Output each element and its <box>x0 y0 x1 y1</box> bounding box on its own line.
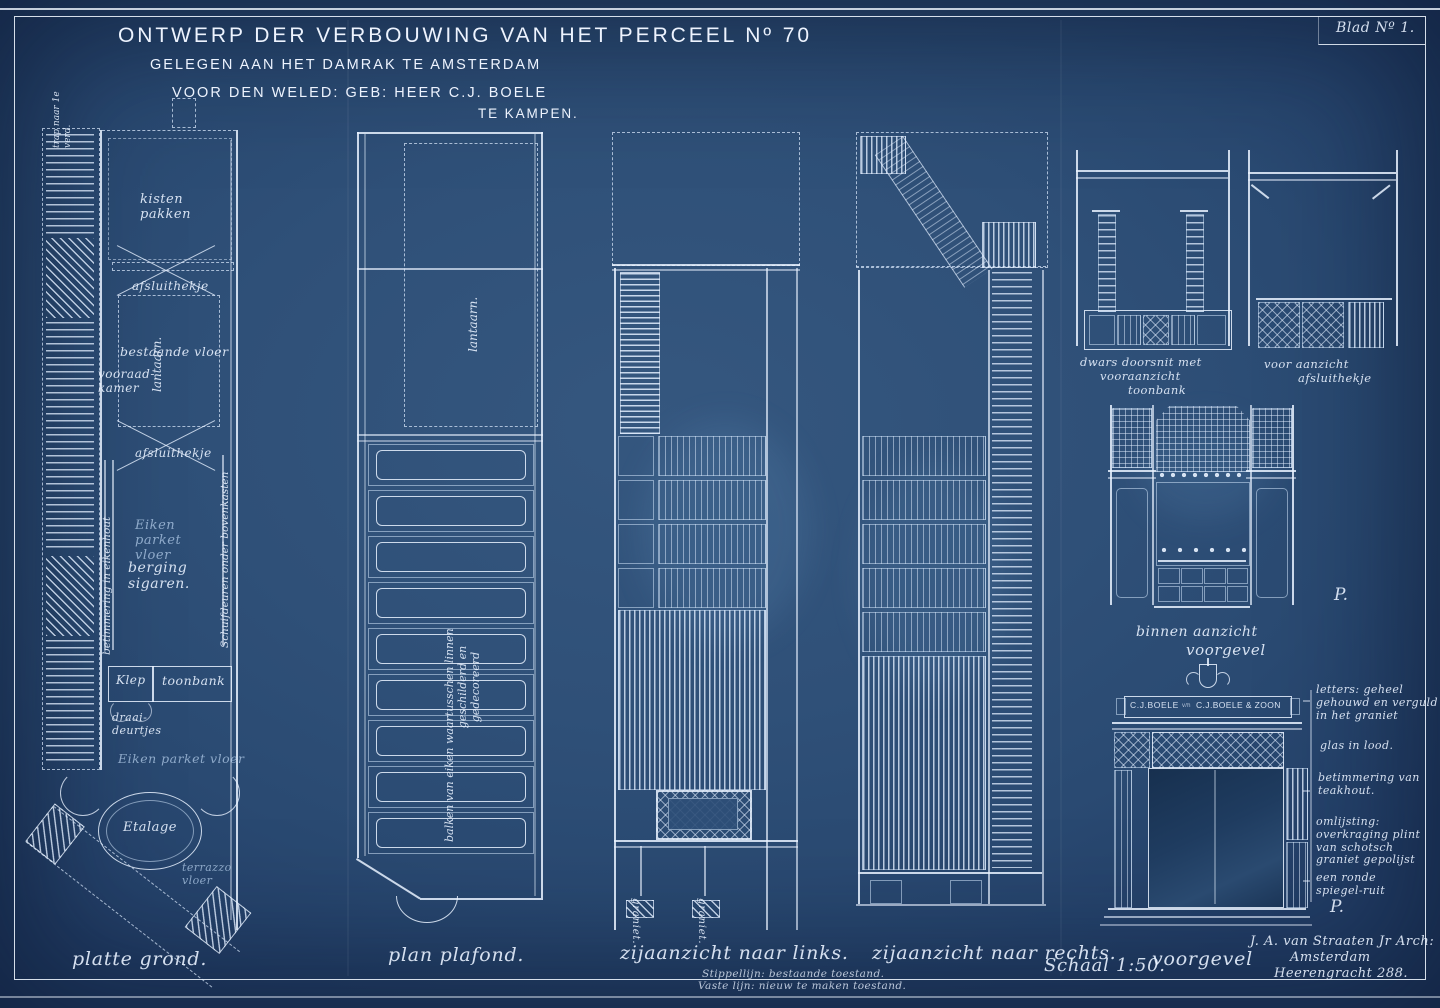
plan-top-edge <box>102 130 236 131</box>
shelf-row <box>862 524 986 564</box>
voorgevel-note-omlijsting: omlijsting: overkraging plint van schots… <box>1316 816 1438 867</box>
voorgevel-note-betimmering: betimmering van teakhout. <box>1318 772 1428 798</box>
crest-shield <box>1199 664 1217 688</box>
ba-base-panel <box>1204 586 1226 602</box>
rechts-stair-landing <box>982 222 1036 268</box>
ba-pilaster-l-in <box>1152 405 1154 605</box>
notes-leader-line <box>1310 690 1312 902</box>
blueprint-sheet: Blad Nº 1. ONTWERP DER VERBOUWING VAN HE… <box>0 0 1440 1008</box>
plan-wall-left <box>100 130 102 770</box>
links-existing-outline <box>612 132 800 266</box>
doorway-center-stile <box>1214 770 1216 904</box>
shelf-row <box>862 480 986 520</box>
label-afsluithekje-2: afsluithekje <box>135 447 212 461</box>
label-hekje-2: afsluithekje <box>1298 372 1371 385</box>
notes-tick-1 <box>1303 700 1310 702</box>
crest-scroll-left <box>1186 672 1201 687</box>
label-draaideurtjes: draai- deurtjes <box>112 712 172 738</box>
ba-glass-right <box>1252 408 1292 468</box>
sign-text-mid: v/h <box>1182 703 1191 710</box>
links-leader-2 <box>704 846 706 896</box>
links-edge-mid <box>766 268 768 930</box>
label-afsluithekje-1: afsluithekje <box>132 280 209 294</box>
beam-line-b <box>357 440 543 442</box>
ba-base-panel <box>1158 586 1180 602</box>
stair-flight-3 <box>46 640 94 765</box>
signature-line1: J. A. van Straaten Jr Arch: <box>1250 934 1434 949</box>
links-slat-block <box>618 610 766 790</box>
notes-tick-2 <box>1303 790 1310 792</box>
toonbank-panel-hatch-l <box>1117 315 1141 345</box>
legend-stippellijn: Stippellijn: bestaande toestand. <box>702 968 884 980</box>
plinth-step-c <box>1100 924 1312 926</box>
title-line1: ONTWERP DER VERBOUWING VAN HET PERCEEL N… <box>118 24 812 48</box>
transom-stained-glass <box>1152 732 1284 768</box>
ceiling-panel-inner <box>376 450 526 480</box>
rechts-base-b <box>856 904 1046 906</box>
title-line4: TE KAMPEN. <box>478 106 579 121</box>
label-sectie-3: toonbank <box>1128 384 1186 397</box>
ba-railing-finials <box>1160 546 1246 556</box>
crest-scroll-right <box>1215 672 1230 687</box>
signature-line3: Heerengracht 288. <box>1274 966 1408 981</box>
links-edge-left <box>614 268 616 930</box>
label-hekje-1: voor aanzicht <box>1264 358 1349 371</box>
ba-base-panel <box>1181 568 1203 584</box>
label-vooraadkamer: vooraad- kamer <box>98 368 160 396</box>
hekje-slat-panel <box>1348 302 1384 348</box>
links-ornate-counter-inner <box>668 798 738 830</box>
label-lantaarn-plafond: lantaarn. <box>466 242 480 352</box>
voorgevel-note-glas: glas in lood. <box>1320 740 1440 753</box>
shopfront-arc-right <box>194 770 240 816</box>
plafond-note: balken van eiken waartusschen linnen ges… <box>444 532 483 842</box>
caption-plafond: plan plafond. <box>388 944 524 966</box>
ba-cornice-r-a <box>1246 470 1296 472</box>
entablature-b <box>1112 728 1302 730</box>
label-toonbank: toonbank <box>162 674 225 689</box>
label-binnen-2: voorgevel <box>1186 642 1266 659</box>
links-stair-strip <box>620 272 660 434</box>
notes-tick-3 <box>1303 880 1310 882</box>
sectie-cap-left <box>1092 210 1120 212</box>
caption-plattegrond: platte grond. <box>72 948 207 970</box>
plafond-left-inner <box>364 134 366 856</box>
shelf-cell-wide <box>658 568 766 608</box>
shelf-row <box>862 436 986 476</box>
shelf-cell-small <box>618 436 654 476</box>
sign-text-right: C.J.BOELE & ZOON <box>1196 701 1281 711</box>
hekje-rail-top <box>1256 298 1392 300</box>
voorgevel-note-letters: letters: geheel gehouwd en verguld in he… <box>1316 684 1438 722</box>
lantaarn-box-plan <box>118 295 220 427</box>
ba-stained-glass-center <box>1156 406 1250 472</box>
gate-2 <box>116 420 216 470</box>
sectie-beam-a <box>1076 170 1228 172</box>
caption-zij-links: zijaanzicht naar links. <box>620 942 849 964</box>
label-berging: berging sigaren. <box>128 560 220 592</box>
shelf-cell-small <box>618 568 654 608</box>
rechts-ladder-strip <box>992 272 1032 868</box>
paper-edge-top <box>0 8 1440 10</box>
links-base-b <box>614 846 798 848</box>
links-division-a <box>612 264 800 266</box>
crease-right <box>1060 20 1062 976</box>
paper-edge-bottom <box>0 996 1440 998</box>
label-sectie-1: dwars doorsnit met <box>1080 356 1202 369</box>
label-binnen-1: binnen aanzicht <box>1136 624 1258 640</box>
ba-base-line <box>1154 606 1250 608</box>
rechts-edge-left <box>858 270 860 904</box>
sheet-number: Blad Nº 1. <box>1336 20 1415 36</box>
entablature-a <box>1112 722 1302 724</box>
sign-text-left: C.J.BOELE <box>1130 701 1179 711</box>
rechts-division <box>856 266 1046 267</box>
crease-left <box>347 20 349 976</box>
shelf-row <box>862 568 986 608</box>
toonbank-panel-hatch-r <box>1171 315 1195 345</box>
ba-glass-left <box>1112 408 1152 468</box>
ba-panel-right <box>1256 488 1288 598</box>
plafond-top <box>357 132 543 134</box>
sign-scroll-right <box>1290 698 1300 715</box>
ba-base-panel <box>1181 586 1203 602</box>
hekje-post-right <box>1396 150 1398 346</box>
rechts-edge-right <box>1042 270 1044 904</box>
label-kisten: kisten pakken <box>140 192 220 222</box>
plinth-step-b <box>1104 916 1310 918</box>
chimney-box <box>172 98 196 128</box>
ba-base-panel <box>1204 568 1226 584</box>
rechts-edge-mid <box>988 270 990 904</box>
column-right-slats-top <box>1286 768 1308 840</box>
label-klep: Klep <box>116 674 146 688</box>
doorway-glass <box>1148 768 1284 908</box>
label-terrazzo: terrazzo vloer <box>182 862 254 888</box>
toonbank-panel-ornate <box>1143 315 1169 345</box>
plafond-left <box>357 132 359 858</box>
label-etalage: Etalage <box>120 820 180 835</box>
label-bestaande-vloer: bestaande vloer <box>120 345 230 360</box>
signature-line2: Amsterdam <box>1290 950 1371 965</box>
label-betimmering: betimmering in eikenhout <box>101 460 113 655</box>
plan-wall-right <box>236 130 238 930</box>
label-eiken-parket-2: Eiken parket vloer <box>118 752 258 767</box>
rechts-foot-1 <box>870 880 902 904</box>
hekje-beam-a <box>1248 172 1396 174</box>
ba-base-panel <box>1158 568 1180 584</box>
caption-schaal: Schaal 1:50. <box>1044 956 1166 977</box>
ba-pilaster-r-out <box>1292 405 1294 605</box>
title-line3: VOOR DEN WELED: GEB: HEER C.J. BOELE <box>172 85 547 101</box>
ba-lamp-row <box>1158 471 1248 479</box>
toonbank-panel-plain-l <box>1089 315 1115 345</box>
caption-voorgevel: voorgevel <box>1152 948 1253 970</box>
links-division-b <box>612 269 800 271</box>
ba-cornice-r-b <box>1246 477 1296 479</box>
ornament-panel-left <box>1114 732 1150 768</box>
plinth-step-a <box>1108 908 1306 910</box>
links-leader-1 <box>640 846 642 896</box>
label-eiken-parket-1: Eiken parket vloer <box>135 518 221 563</box>
links-base-a <box>614 840 798 842</box>
shelf-cell-small <box>618 480 654 520</box>
label-sectie-2: vooraanzicht <box>1100 370 1181 383</box>
ba-base-panel <box>1227 586 1248 602</box>
column-right-slats-bottom <box>1286 842 1308 908</box>
shelf-cell-wide <box>658 436 766 476</box>
pilaster-left-shaft <box>1114 770 1132 908</box>
stair-flight-2 <box>46 322 94 552</box>
ba-cornice-l-a <box>1108 470 1156 472</box>
p-mark-upper: P. <box>1334 586 1349 606</box>
sectie-beam-b <box>1076 177 1228 179</box>
sectie-cap-right <box>1180 210 1208 212</box>
plafond-note-line3: gedecoreerd <box>470 532 483 842</box>
hekje-lattice-2 <box>1302 302 1344 348</box>
links-edge-right <box>796 268 798 930</box>
shelf-cell-wide <box>658 524 766 564</box>
title-line2: GELEGEN AAN HET DAMRAK TE AMSTERDAM <box>150 57 541 73</box>
toonbank-panel-plain-r <box>1197 315 1226 345</box>
p-mark-lower: P. <box>1330 898 1345 918</box>
ba-railing-rail <box>1158 560 1246 562</box>
stair-flight-1 <box>46 134 94 234</box>
shelf-cell-wide <box>658 480 766 520</box>
stair-winder-1 <box>46 238 94 318</box>
ba-panel-left <box>1116 488 1148 598</box>
beam-line-a <box>357 434 543 436</box>
ba-base-panel <box>1227 568 1248 584</box>
sign-scroll-left <box>1116 698 1126 715</box>
stair-winder-2 <box>46 556 94 636</box>
shelf-cell-small <box>618 524 654 564</box>
plafond-right <box>541 132 543 898</box>
ba-cornice-l-b <box>1108 477 1156 479</box>
plafond-note-line2: geschilderd en <box>457 532 470 842</box>
legend-vastelijn: Vaste lijn: nieuw te maken toestand. <box>698 980 906 992</box>
voorgevel-note-spiegel: een ronde spiegel-ruit <box>1316 872 1426 898</box>
sectie-ladder-left <box>1098 214 1116 312</box>
rechts-base-a <box>858 872 1042 874</box>
shopfront-arc-left <box>60 770 106 816</box>
shelf-row <box>862 612 986 652</box>
sectie-ladder-right <box>1186 214 1204 312</box>
rechts-slat-block <box>862 656 986 870</box>
hekje-lattice-1 <box>1258 302 1300 348</box>
hekje-beam-b <box>1248 179 1396 181</box>
ceiling-panel-inner <box>376 496 526 526</box>
sectie-post-left <box>1076 150 1078 346</box>
rechts-foot-2 <box>950 880 982 904</box>
